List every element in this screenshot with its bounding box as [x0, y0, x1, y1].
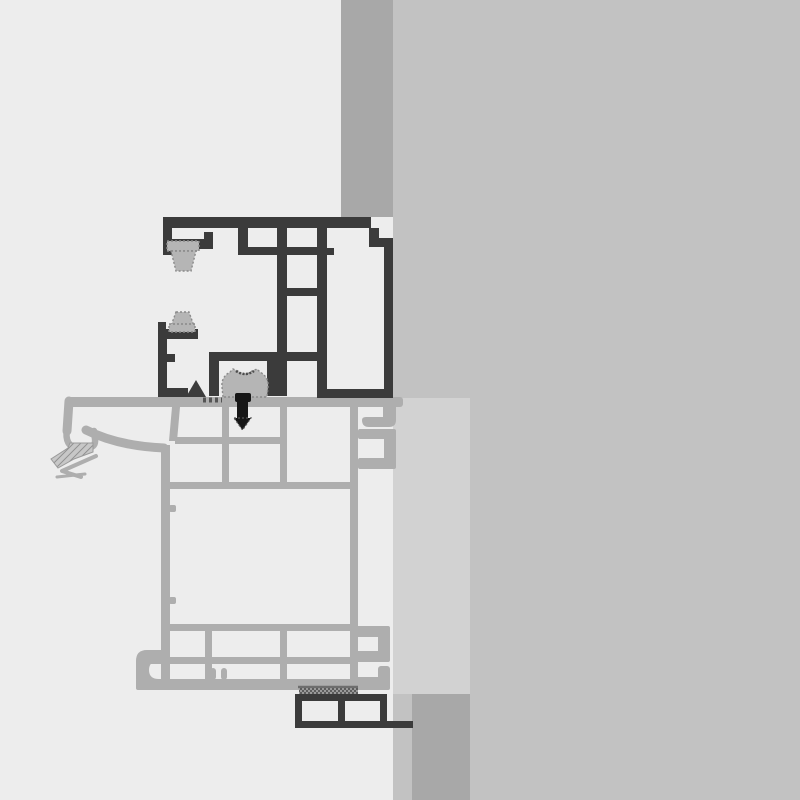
brush-seal-lower — [169, 312, 195, 332]
glazing-clamp — [222, 369, 268, 397]
rubber-gasket — [51, 401, 96, 477]
slanted-web — [169, 407, 180, 441]
fixing-screw — [234, 393, 251, 430]
zigzag-tooth — [186, 380, 206, 397]
connector-lug-2 — [358, 429, 396, 469]
connector-lug-3 — [355, 626, 390, 662]
mounting-bracket — [295, 694, 413, 728]
profile-drawing — [0, 0, 800, 800]
cad-drawing-canvas — [0, 0, 800, 800]
brush-seal-upper — [167, 241, 199, 271]
sash-profile — [51, 397, 403, 694]
